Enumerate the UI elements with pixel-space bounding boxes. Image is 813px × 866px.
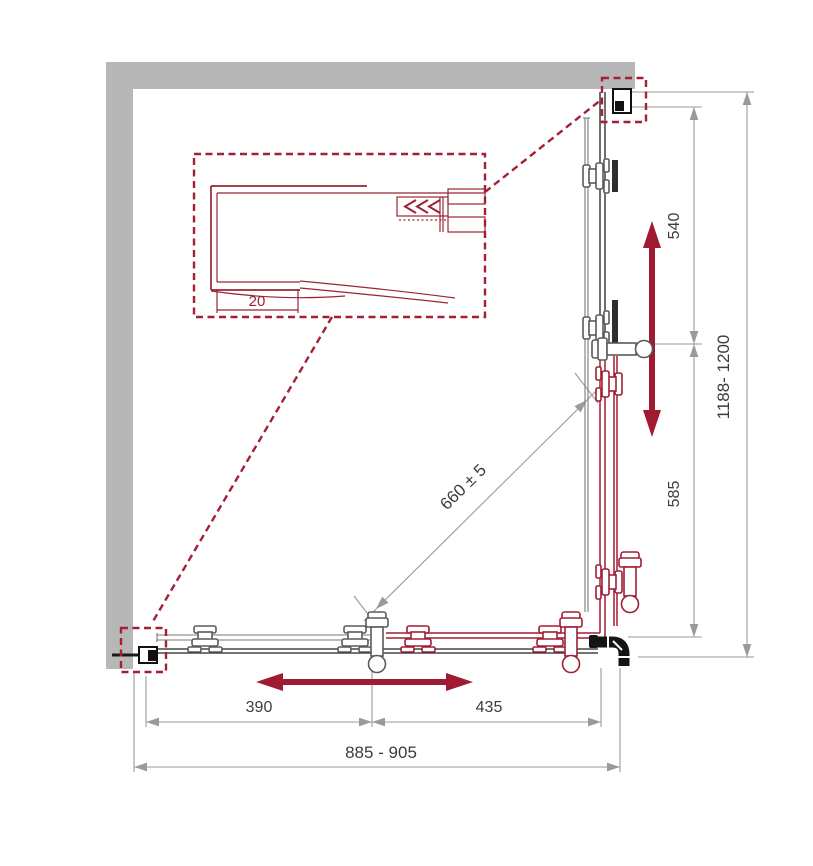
side-knob-upper xyxy=(592,338,653,360)
corner-bracket xyxy=(589,635,630,666)
dim-label-660: 660 ± 5 xyxy=(436,460,490,513)
horizontal-adjust-arrow xyxy=(256,673,473,691)
detail-callout-box xyxy=(194,154,485,317)
technical-drawing-page: 540 585 1188- 1200 390 435 885 - 905 xyxy=(0,0,813,866)
dim-label-1188-1200: 1188- 1200 xyxy=(714,335,733,420)
dimension-390: 390 xyxy=(146,699,372,722)
dim-label-540: 540 xyxy=(666,213,683,240)
front-door-glass xyxy=(157,633,370,642)
dimension-885-905: 885 - 905 xyxy=(134,743,620,767)
shower-enclosure-plan-drawing: 540 585 1188- 1200 390 435 885 - 905 xyxy=(0,0,813,866)
wall-profile-top xyxy=(613,89,631,113)
detail-dimension-20: 20 xyxy=(217,289,298,313)
wall-profile-bottom xyxy=(139,647,157,663)
wall-left xyxy=(106,62,133,669)
callout-leader-bottom xyxy=(152,317,332,623)
vertical-adjust-arrow xyxy=(643,221,661,437)
dim-label-390: 390 xyxy=(246,699,273,716)
dimension-annotations: 540 585 1188- 1200 390 435 885 - 905 xyxy=(134,92,754,772)
front-roller-right xyxy=(338,626,372,652)
detail-callout: 20 xyxy=(121,78,646,672)
door-clamp-bar xyxy=(612,160,618,192)
dim-label-585: 585 xyxy=(666,481,683,508)
dimension-diagonal-660: 660 ± 5 xyxy=(354,373,599,626)
wall-top xyxy=(106,62,635,89)
front-clamp-left xyxy=(401,626,435,652)
front-roller-left xyxy=(188,626,222,652)
dimension-435: 435 xyxy=(372,699,601,722)
dim-label-885-905: 885 - 905 xyxy=(345,743,417,762)
front-knob-left xyxy=(366,612,388,673)
front-clamp-right xyxy=(533,626,567,652)
dim-label-20: 20 xyxy=(249,293,266,310)
detail-profile-drawing: 20 xyxy=(211,186,485,313)
dim-label-435: 435 xyxy=(476,699,503,716)
side-door-glass xyxy=(583,118,590,612)
profile-chevrons xyxy=(405,200,440,213)
glass-panels-and-rails xyxy=(157,92,618,653)
dimension-540: 540 xyxy=(666,107,694,344)
door-clamp-bar xyxy=(612,300,618,344)
dimension-585: 585 xyxy=(666,344,694,637)
hardware xyxy=(139,89,653,673)
dimension-1188-1200: 1188- 1200 xyxy=(714,92,747,657)
